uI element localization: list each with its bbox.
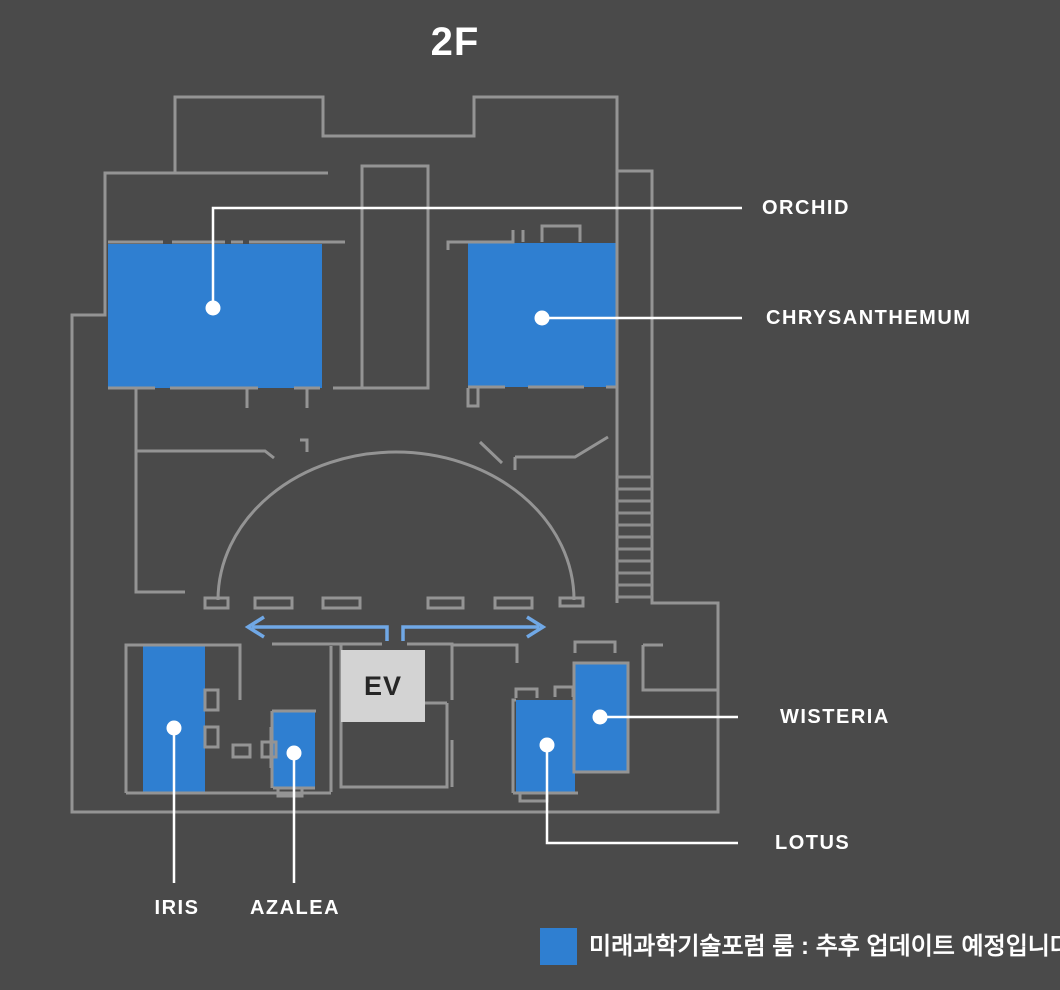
dot-wisteria xyxy=(593,710,608,725)
hall-arc xyxy=(218,452,574,600)
room-label-orchid: ORCHID xyxy=(762,198,850,218)
legend: 미래과학기술포럼 룸 : 추후 업데이트 예정입니다. xyxy=(540,928,1060,965)
elevator-label: EV xyxy=(341,650,425,722)
direction-arrows xyxy=(248,617,543,641)
stair-treads xyxy=(617,477,652,597)
dot-azalea xyxy=(287,746,302,761)
room-label-azalea: AZALEA xyxy=(250,898,340,918)
floor-title: 2F xyxy=(431,20,480,65)
legend-swatch xyxy=(540,928,577,965)
left-wing-walls xyxy=(136,388,274,592)
door-marker-5 xyxy=(495,598,532,608)
legend-text: 미래과학기술포럼 룸 : 추후 업데이트 예정입니다. xyxy=(589,928,1060,965)
door-markers xyxy=(205,598,583,608)
fixture-1 xyxy=(233,745,250,757)
dot-orchid xyxy=(206,301,221,316)
room-label-lotus: LOTUS xyxy=(775,833,850,853)
dot-chrysanthemum xyxy=(535,311,550,326)
room-orchid xyxy=(108,244,322,388)
arc-opening-walls xyxy=(300,437,608,470)
room-label-chrysanthemum: CHRYSANTHEMUM xyxy=(766,308,971,328)
door-marker-1 xyxy=(205,598,228,608)
floorplan-svg xyxy=(0,0,1060,990)
central-shaft xyxy=(333,166,428,388)
door-marker-6 xyxy=(560,598,583,606)
dot-lotus xyxy=(540,738,555,753)
lotus-foot xyxy=(520,793,547,801)
door-marker-3 xyxy=(323,598,360,608)
door-marker-2 xyxy=(255,598,292,608)
floor-map-2f: 2F ORCHID CHRYSANTHEMUM WISTERIA LOTUS I… xyxy=(0,0,1060,990)
iris-tab-1 xyxy=(205,690,218,710)
direction-arrow-left-icon xyxy=(248,617,387,641)
iris-tab-2 xyxy=(205,727,218,747)
room-label-wisteria: WISTERIA xyxy=(780,707,890,727)
dot-iris xyxy=(167,721,182,736)
door-marker-4 xyxy=(428,598,463,608)
staircase xyxy=(617,477,652,597)
room-label-iris: IRIS xyxy=(155,898,200,918)
direction-arrow-right-icon xyxy=(403,617,543,641)
